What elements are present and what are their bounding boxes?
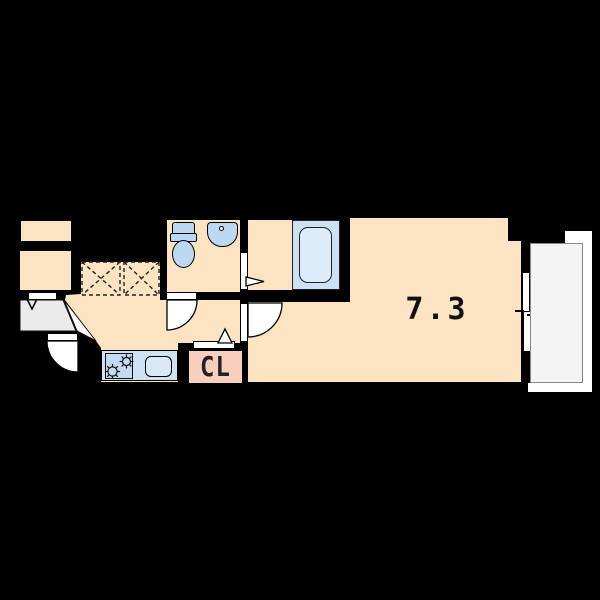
bathtub-icon: [299, 227, 332, 283]
entrance-door-swing: [47, 341, 78, 372]
main-room-size-label: 7.3: [398, 292, 476, 326]
wall-bath-mainroom: [340, 212, 350, 302]
entrance-direction-arrow-icon: [27, 299, 37, 309]
window-sash-upper: [522, 272, 530, 312]
mainroom-door-opening: [240, 303, 248, 342]
closet-door-leaf: [193, 341, 235, 349]
entry-storage-box: [19, 250, 72, 291]
toilet-door-opening: [166, 292, 197, 300]
basin-faucet-icon: [219, 226, 224, 231]
closet-label: CL: [189, 349, 242, 386]
entry-threshold-opening: [28, 292, 57, 300]
meter-box: [20, 220, 72, 242]
closet-room: CL: [189, 351, 242, 383]
bath-door-opening: [240, 252, 248, 290]
entrance-door-leaf: [47, 333, 78, 341]
toilet-bowl-icon: [172, 240, 195, 268]
kitchen-stove-icon: [105, 353, 133, 379]
floorplan-canvas: CL 7.3: [0, 0, 600, 600]
balcony-railing-right: [583, 231, 592, 392]
balcony-railing-bottom: [528, 383, 592, 392]
genkan-step-area: [20, 300, 76, 331]
balcony-floor: [530, 243, 583, 383]
window-meeting-rail: [515, 310, 524, 312]
kitchen-sink-icon: [145, 356, 172, 377]
